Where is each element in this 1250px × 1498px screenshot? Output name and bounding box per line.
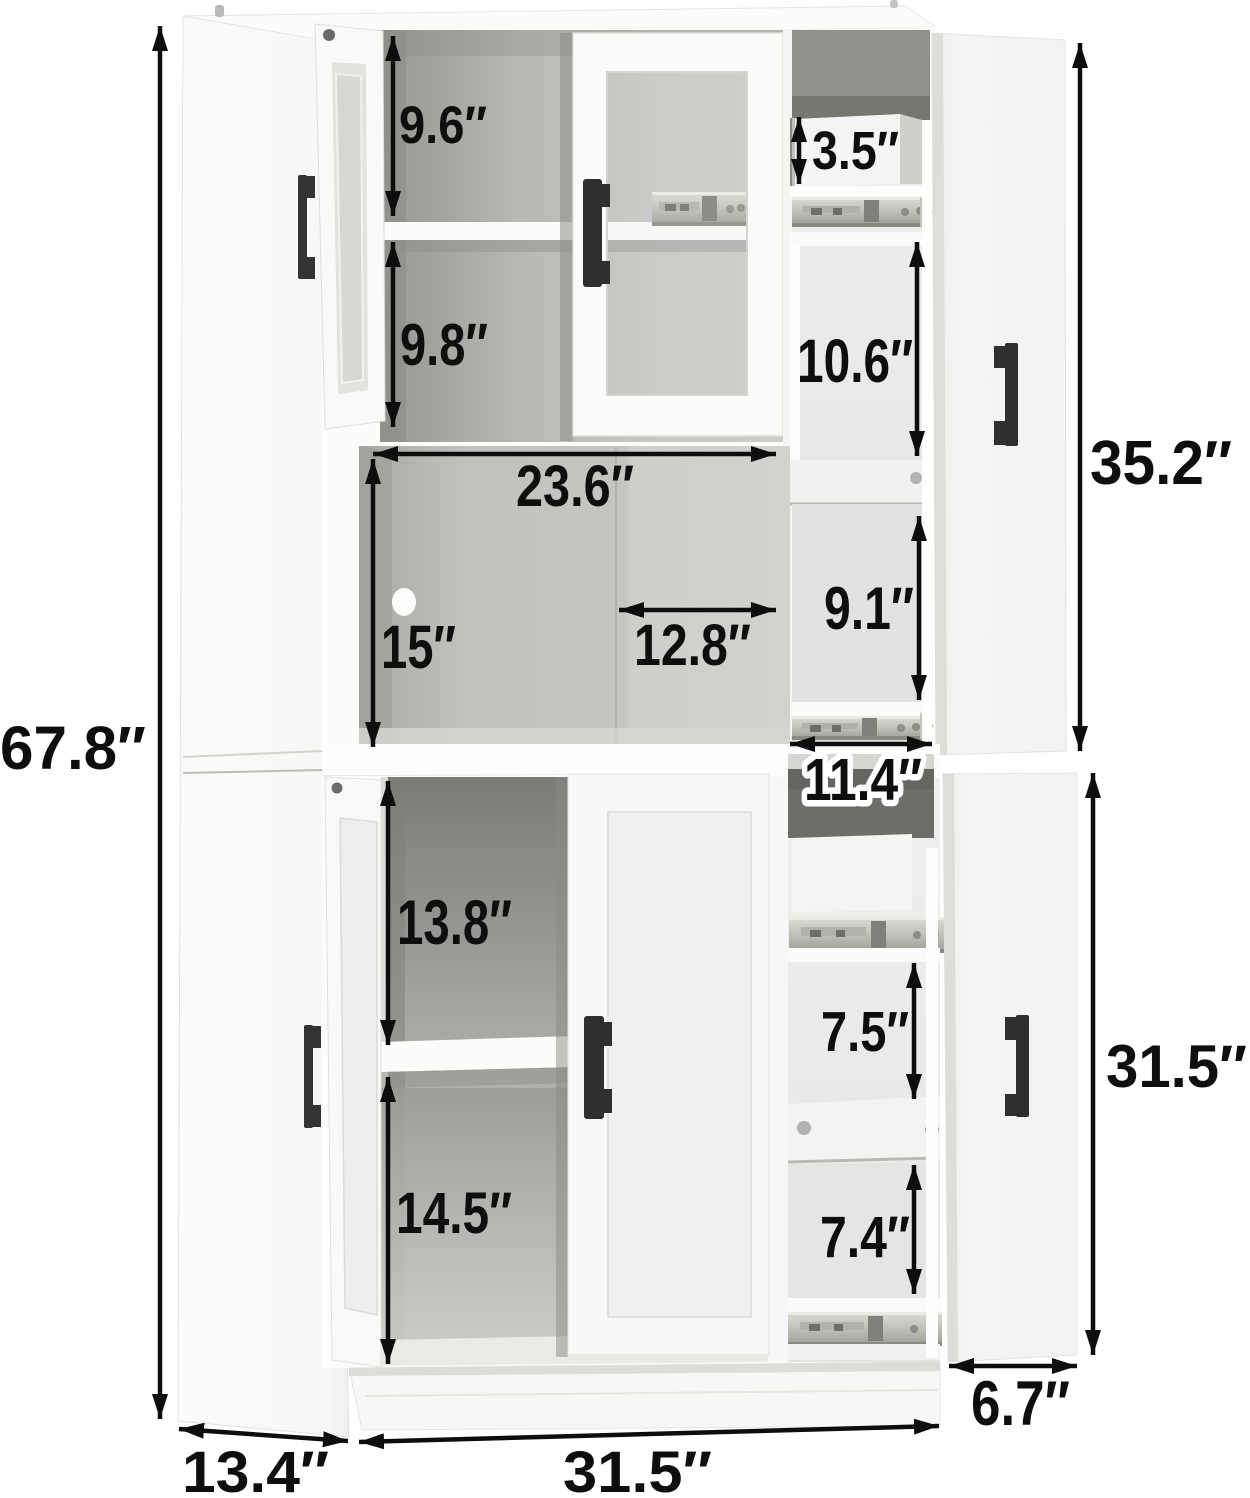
svg-text:10.6″: 10.6″ <box>797 327 913 395</box>
svg-text:7.4″: 7.4″ <box>820 1205 910 1270</box>
svg-text:7.5″: 7.5″ <box>821 1000 909 1064</box>
svg-text:67.8″: 67.8″ <box>0 714 146 782</box>
svg-text:14.5″: 14.5″ <box>396 1181 512 1246</box>
svg-text:15″: 15″ <box>381 613 456 681</box>
svg-text:13.8″: 13.8″ <box>397 888 512 958</box>
svg-text:12.8″: 12.8″ <box>634 613 751 678</box>
svg-text:35.2″: 35.2″ <box>1090 429 1232 498</box>
svg-text:13.4″: 13.4″ <box>182 1440 329 1498</box>
svg-text:23.6″: 23.6″ <box>516 454 634 519</box>
svg-text:6.7″: 6.7″ <box>971 1369 1070 1439</box>
svg-text:9.1″: 9.1″ <box>824 575 914 642</box>
svg-text:31.5″: 31.5″ <box>1106 1033 1247 1100</box>
svg-text:31.5″: 31.5″ <box>563 1440 712 1498</box>
svg-text:9.6″: 9.6″ <box>399 96 487 155</box>
svg-text:9.8″: 9.8″ <box>400 312 488 378</box>
svg-text:3.5″: 3.5″ <box>812 121 899 181</box>
svg-text:11.4″: 11.4″ <box>804 747 922 813</box>
